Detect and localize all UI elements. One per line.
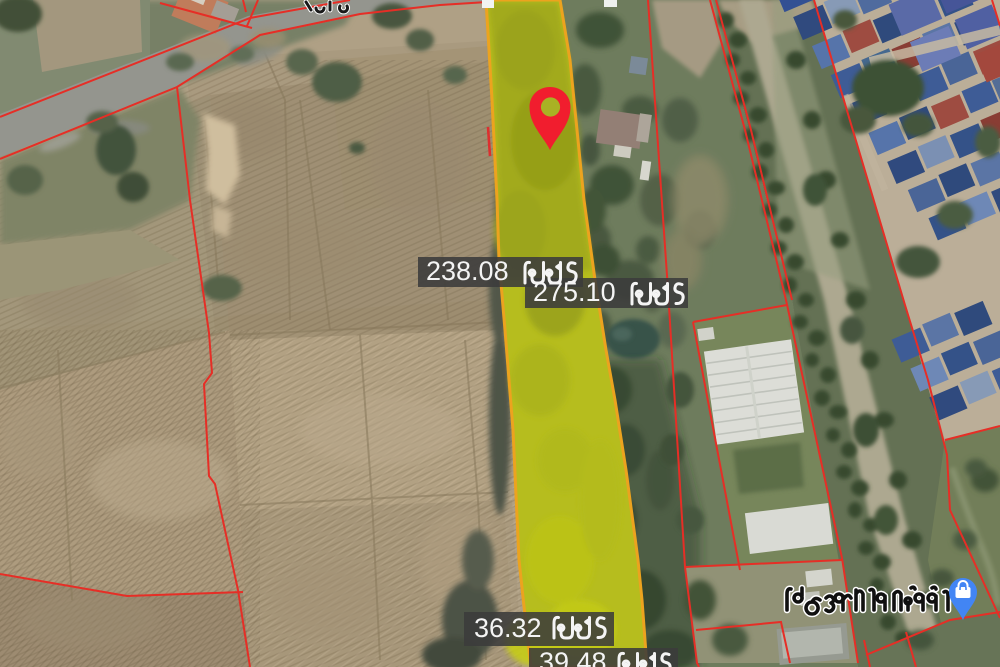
svg-text:238.08: 238.08: [426, 256, 509, 286]
svg-text:36.32: 36.32: [474, 613, 542, 643]
svg-text:39.48: 39.48: [539, 647, 607, 667]
